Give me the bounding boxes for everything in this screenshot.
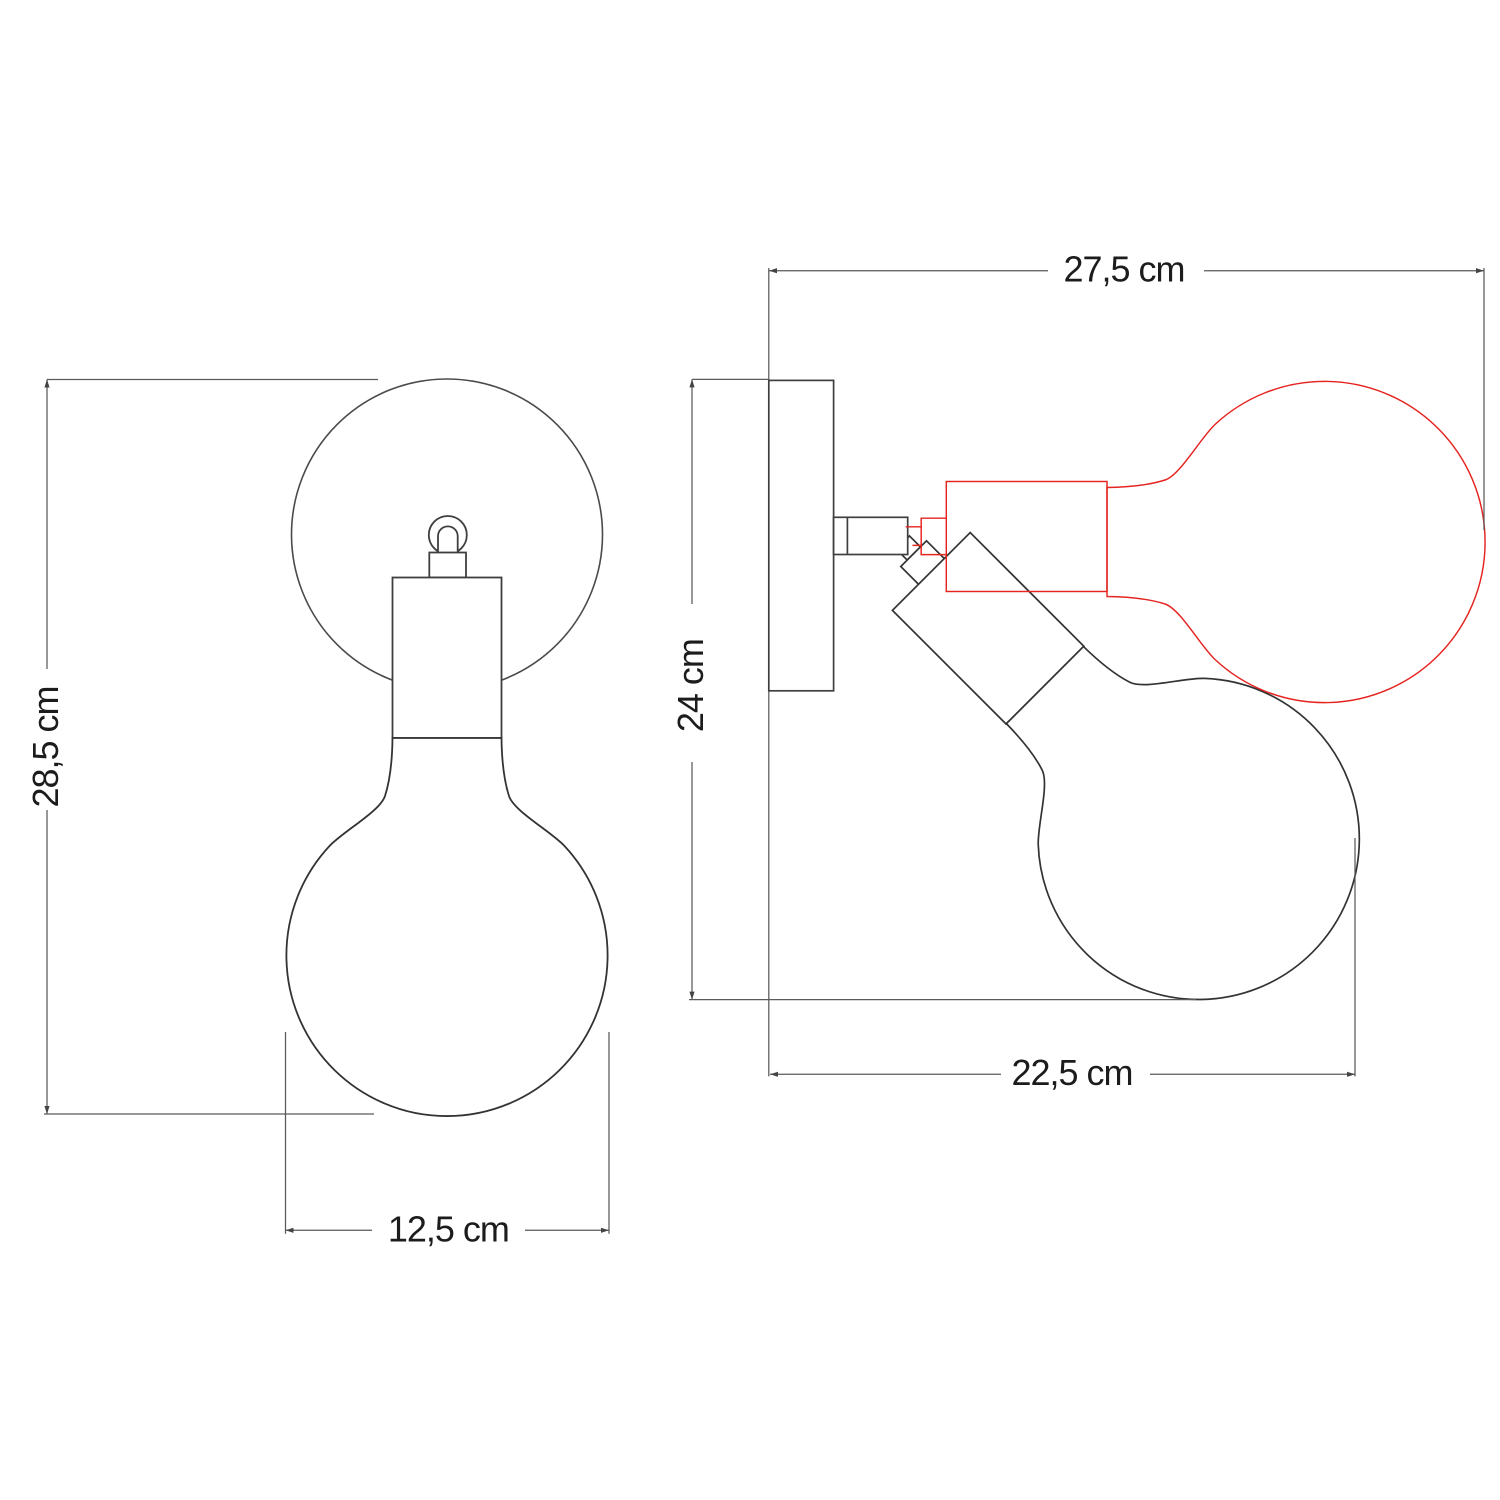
svg-text:22,5 cm: 22,5 cm <box>1011 1052 1132 1093</box>
svg-text:24 cm: 24 cm <box>670 639 711 732</box>
svg-text:28,5 cm: 28,5 cm <box>25 686 66 807</box>
svg-text:12,5 cm: 12,5 cm <box>388 1209 509 1250</box>
svg-text:27,5 cm: 27,5 cm <box>1063 248 1184 289</box>
